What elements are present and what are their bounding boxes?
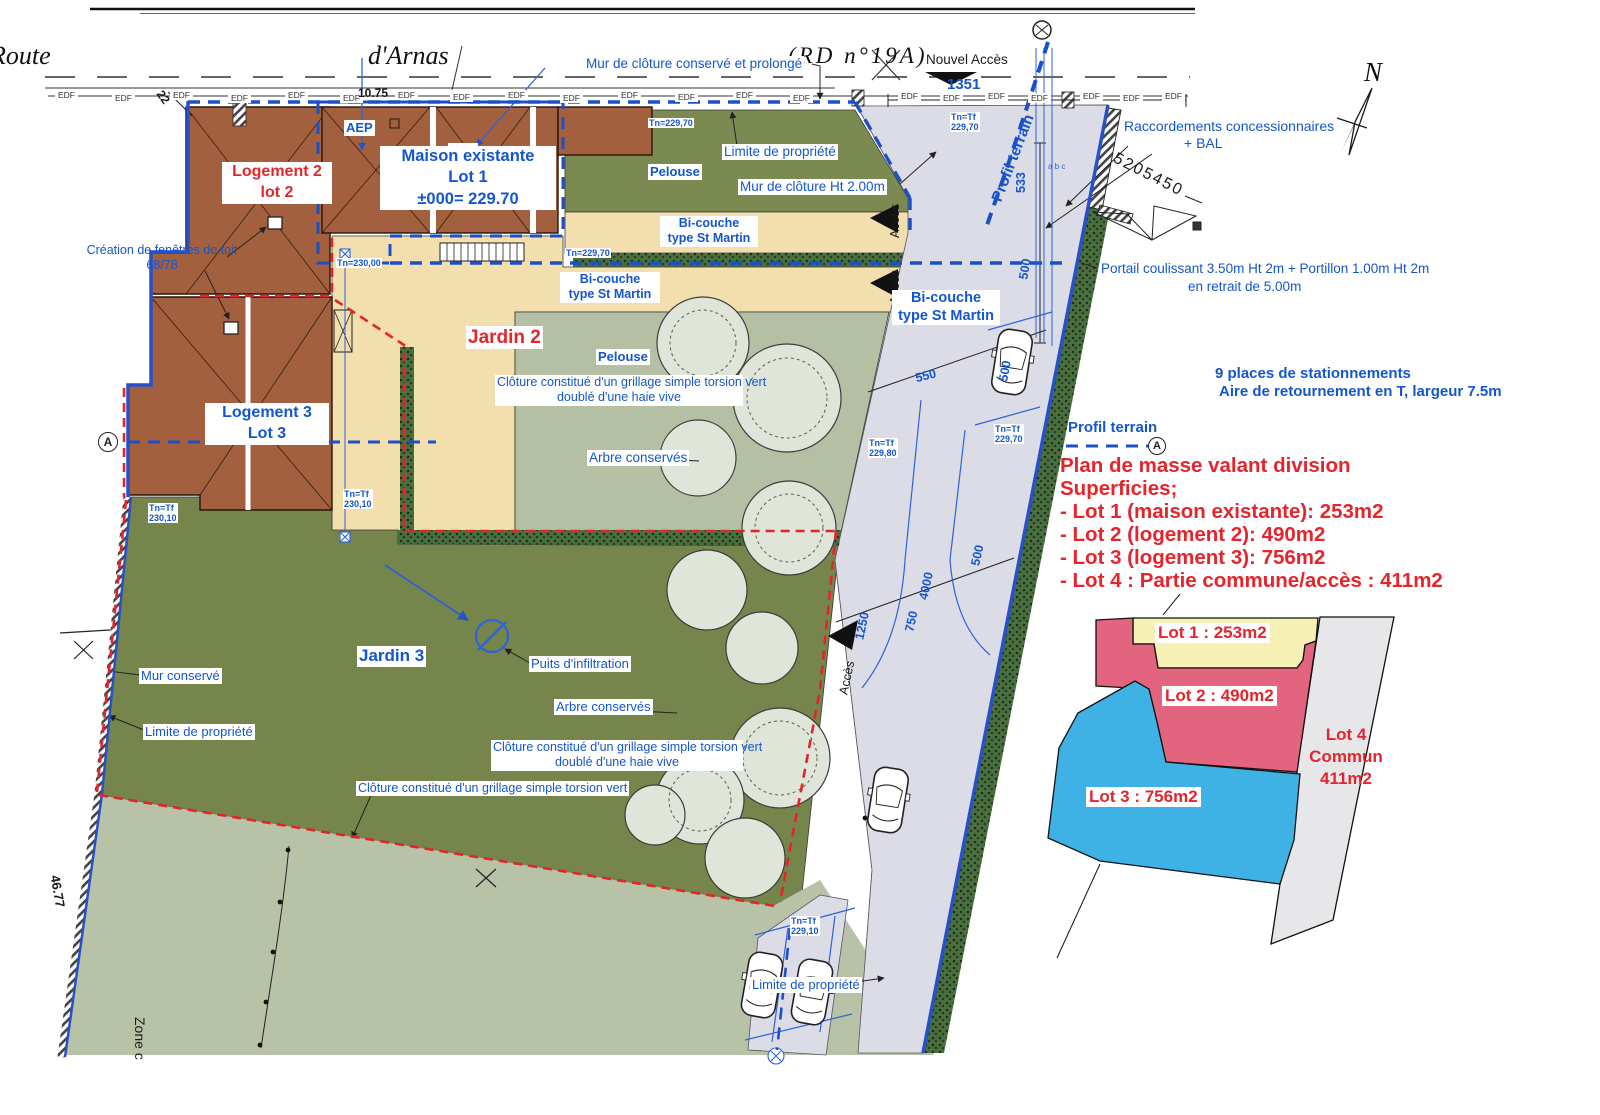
- dim-abc: a b c: [1046, 162, 1067, 172]
- logement-3-line-1: Logement 3: [207, 403, 327, 424]
- logement-3-line-2: Lot 3: [207, 424, 327, 445]
- dim-533: 533: [1014, 170, 1029, 195]
- aire-retournement-label: Aire de retournement en T, largeur 7.5m: [1217, 383, 1504, 401]
- tn-tf-230-10-label-1: Tn=Tf 230,10: [343, 489, 373, 509]
- acces-label-1: Accès: [888, 202, 903, 240]
- road-name-arnas: d'Arnas: [366, 40, 451, 72]
- mur-cloture-ht-label: Mur de clôture Ht 2.00m: [738, 179, 887, 195]
- bicouche-line-1: Bi-couche: [894, 290, 998, 308]
- mur-cloture-conserve-label: Mur de clôture conservé et prolongé: [584, 56, 804, 72]
- tn-line-1: Tn=Tf: [149, 503, 177, 513]
- edf-marker-label: EDF: [560, 93, 583, 103]
- edf-marker-label: EDF: [55, 90, 78, 100]
- tn-tf-230-10-label-2: Tn=Tf 230,10: [148, 503, 178, 523]
- summary-lot-1: - Lot 1 (maison existante): 253m2: [1060, 500, 1443, 523]
- tn-tf-229-10-label: Tn=Tf 229,10: [790, 916, 820, 936]
- edf-marker-label: EDF: [285, 90, 308, 100]
- cloture-grillage-label: Clôture constitué d'un grillage simple t…: [356, 781, 629, 796]
- site-plan-page: Route d'Arnas (RD n°19A) Nouvel Accès Mu…: [0, 0, 1600, 1115]
- limite-propriete-left-label: Limite de propriété: [143, 724, 255, 740]
- inset-lot4-line-1: Lot 4: [1300, 724, 1392, 746]
- tn-line-1: Tn=Tf: [869, 438, 897, 448]
- summary-subtitle: Superficies;: [1060, 477, 1443, 500]
- creation-fenetres-label: Création de fenêtres de toit 68/78: [80, 243, 244, 274]
- nouvel-acces-label: Nouvel Accès: [924, 52, 1010, 68]
- tn-229-70-label: Tn=229,70: [648, 118, 694, 128]
- edf-marker-label: EDF: [1028, 93, 1051, 103]
- edf-marker-label: EDF: [1120, 93, 1143, 103]
- tn-line-1: Tn=Tf: [951, 112, 979, 122]
- fenetres-line-1: Création de fenêtres de toit: [82, 243, 242, 258]
- inset-lot-1-label: Lot 1 : 253m2: [1155, 623, 1270, 643]
- raccordements-label: Raccordements concessionnaires: [1122, 118, 1336, 135]
- jardin-3-label: Jardin 3: [357, 646, 426, 667]
- cloture-line-1: Clôture constitué d'un grillage simple t…: [493, 740, 741, 755]
- puits-infiltration-label: Puits d'infiltration: [529, 656, 631, 672]
- pelouse-top-label: Pelouse: [648, 164, 702, 180]
- bicouche-line-1: Bi-couche: [562, 272, 658, 287]
- tn-line-1: Tn=Tf: [995, 424, 1023, 434]
- arbre-conserves-label-1: Arbre conservés: [587, 450, 689, 466]
- inset-lot-4-label: Lot 4 Commun 411m2: [1297, 724, 1395, 790]
- arbre-conserves-label-2: Arbre conservés: [554, 699, 653, 715]
- limite-propriete-bottom-label: Limite de propriété: [750, 977, 862, 993]
- cloture-line-1: Clôture constitué d'un grillage simple t…: [497, 375, 741, 390]
- tn-line-2: 229,70: [995, 434, 1023, 444]
- tn-229-70-label-2: Tn=229,70: [565, 248, 611, 258]
- cloture-haie-label-1: Clôture constitué d'un grillage simple t…: [495, 375, 743, 406]
- summary-title: Plan de masse valant division: [1060, 454, 1443, 477]
- crossed-box-symbol: [334, 310, 352, 352]
- superficies-summary: Plan de masse valant division Superficie…: [1060, 454, 1443, 592]
- road-name-route: Route: [0, 40, 53, 72]
- pelouse-mid-label: Pelouse: [596, 349, 650, 365]
- edf-marker-label: EDF: [112, 93, 135, 103]
- logement-2-line-2: lot 2: [224, 183, 330, 204]
- tn-line-2: 229,80: [869, 448, 897, 458]
- tn-line-1: Tn=Tf: [344, 489, 372, 499]
- stairs: [440, 243, 524, 261]
- edf-marker-label: EDF: [790, 93, 813, 103]
- edf-marker-label: EDF: [898, 91, 921, 101]
- north-label: N: [1362, 56, 1384, 89]
- tn-tf-229-70-top-label: Tn=Tf 229,70: [950, 112, 980, 132]
- north-arrow: [1337, 88, 1372, 155]
- edf-marker-label: EDF: [505, 90, 528, 100]
- maison-existante-label: Maison existante Lot 1 ±000= 229.70: [380, 146, 556, 210]
- edf-marker-label: EDF: [733, 90, 756, 100]
- maison-line-1: Maison existante: [382, 146, 554, 167]
- section-letter: A: [104, 435, 113, 449]
- road-number: (RD n°19A): [786, 42, 929, 70]
- logement-2-label: Logement 2 lot 2: [222, 162, 332, 204]
- fenetres-line-2: 68/78: [82, 258, 242, 273]
- cloture-haie-label-2: Clôture constitué d'un grillage simple t…: [491, 740, 743, 771]
- summary-lot-4: - Lot 4 : Partie commune/accès : 411m2: [1060, 569, 1443, 592]
- bicouche-label-road: Bi-couche type St Martin: [892, 290, 1000, 325]
- logement-2-line-1: Logement 2: [224, 162, 330, 183]
- bicouche-label-2: Bi-couche type St Martin: [560, 272, 660, 303]
- edf-marker-label: EDF: [1080, 91, 1103, 101]
- maison-line-3: ±000= 229.70: [382, 189, 554, 210]
- edf-marker-label: EDF: [395, 90, 418, 100]
- cloture-line-2: doublé d'une haie vive: [497, 390, 741, 405]
- manhole-symbol: [1033, 21, 1051, 39]
- jardin-2-label: Jardin 2: [466, 326, 543, 349]
- logement-3-label: Logement 3 Lot 3: [205, 403, 329, 445]
- tn-line-2: 229,10: [791, 926, 819, 936]
- page-edge-lines: [90, 9, 1195, 14]
- maison-line-2: Lot 1: [382, 167, 554, 188]
- profil-terrain-right-label: Profil terrain: [1066, 419, 1159, 437]
- inset-lot-2-label: Lot 2 : 490m2: [1162, 686, 1277, 706]
- section-marker-a-right: A: [1148, 437, 1166, 455]
- dim-10-75: 10.75: [356, 86, 390, 101]
- zone-label: Zone c: [131, 1015, 148, 1062]
- bicouche-line-2: type St Martin: [562, 287, 658, 302]
- section-marker-a-left: A: [98, 432, 118, 452]
- tn-tf-229-80-label: Tn=Tf 229,80: [868, 438, 898, 458]
- inset-lot-3-label: Lot 3 : 756m2: [1086, 787, 1201, 807]
- tn-line-2: 230,10: [344, 499, 372, 509]
- bicouche-line-2: type St Martin: [662, 231, 756, 246]
- bicouche-line-1: Bi-couche: [662, 216, 756, 231]
- bal-label: + BAL: [1182, 135, 1225, 152]
- portail-label-2: en retrait de 5.00m: [1186, 279, 1303, 295]
- aep-label: AEP: [344, 120, 375, 136]
- edf-marker-label: EDF: [618, 90, 641, 100]
- inset-lot4-line-3: 411m2: [1300, 768, 1392, 790]
- tn-line-2: 229,70: [951, 122, 979, 132]
- edf-marker-label: EDF: [1162, 91, 1185, 101]
- portail-label-1: Portail coulissant 3.50m Ht 2m + Portill…: [1099, 261, 1431, 277]
- tn-line-2: 230,10: [149, 513, 177, 523]
- edf-marker-label: EDF: [228, 93, 251, 103]
- summary-lot-3: - Lot 3 (logement 3): 756m2: [1060, 546, 1443, 569]
- places-stationnement-label: 9 places de stationnements: [1213, 365, 1413, 383]
- bicouche-line-2: type St Martin: [894, 308, 998, 326]
- tn-230-00-label: Tn=230,00: [336, 258, 382, 268]
- edf-marker-label: EDF: [450, 92, 473, 102]
- edf-marker-label: EDF: [940, 93, 963, 103]
- tn-tf-229-70-road-label: Tn=Tf 229,70: [994, 424, 1024, 444]
- limite-propriete-top-label: Limite de propriété: [722, 144, 838, 160]
- edf-marker-label: EDF: [675, 92, 698, 102]
- edf-marker-label: EDF: [985, 91, 1008, 101]
- mur-conserve-label: Mur conservé: [139, 668, 222, 684]
- cloture-line-2: doublé d'une haie vive: [493, 755, 741, 770]
- tn-line-1: Tn=Tf: [791, 916, 819, 926]
- section-letter: A: [1153, 440, 1161, 452]
- dim-1351: 1351: [945, 76, 982, 94]
- summary-lot-2: - Lot 2 (logement 2): 490m2: [1060, 523, 1443, 546]
- inset-lot4-line-2: Commun: [1300, 746, 1392, 768]
- bicouche-label-1: Bi-couche type St Martin: [660, 216, 758, 247]
